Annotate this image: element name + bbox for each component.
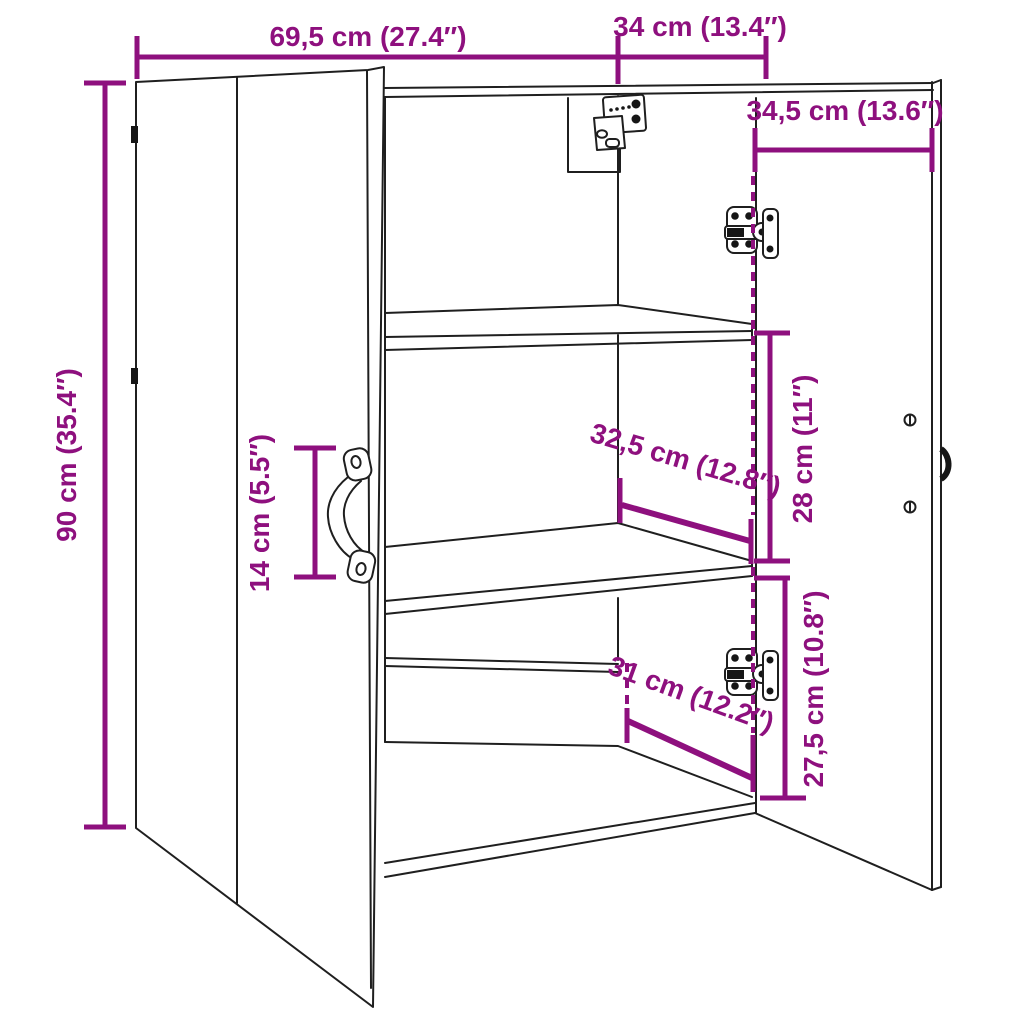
right-door-handle-icon: [941, 449, 949, 479]
diagram-canvas: 69,5 cm (27.4″) 34 cm (13.4″) 34,5 cm (1…: [0, 0, 1024, 1024]
dim-label-top-depth: 34 cm (13.4″): [613, 11, 787, 42]
screw-icon: [905, 415, 916, 426]
upper-shelf: [385, 305, 752, 324]
carcass-interior: [385, 96, 755, 877]
dim-label-upper-compartment-height: 28 cm (11″): [787, 375, 818, 524]
left-door-hinge-mark-bottom: [131, 368, 138, 384]
cabinet-dimension-diagram: 69,5 cm (27.4″) 34 cm (13.4″) 34,5 cm (1…: [0, 0, 1024, 1024]
dim-label-handle-length: 14 cm (5.5″): [244, 434, 275, 592]
dimension-labels: 69,5 cm (27.4″) 34 cm (13.4″) 34,5 cm (1…: [51, 11, 944, 788]
screw-icon: [905, 502, 916, 513]
dim-label-upper-shelf-depth: 32,5 cm (12.8″): [587, 417, 785, 503]
dim-label-lower-compartment-height: 27,5 cm (10.8″): [798, 590, 829, 787]
dim-label-top-width: 69,5 cm (27.4″): [269, 21, 466, 52]
dim-label-height: 90 cm (35.4″): [51, 368, 82, 542]
wall-mount-bracket-icon: [568, 95, 646, 172]
dim-label-door-width: 34,5 cm (13.6″): [746, 95, 943, 126]
left-door-hinge-mark-top: [131, 126, 138, 143]
